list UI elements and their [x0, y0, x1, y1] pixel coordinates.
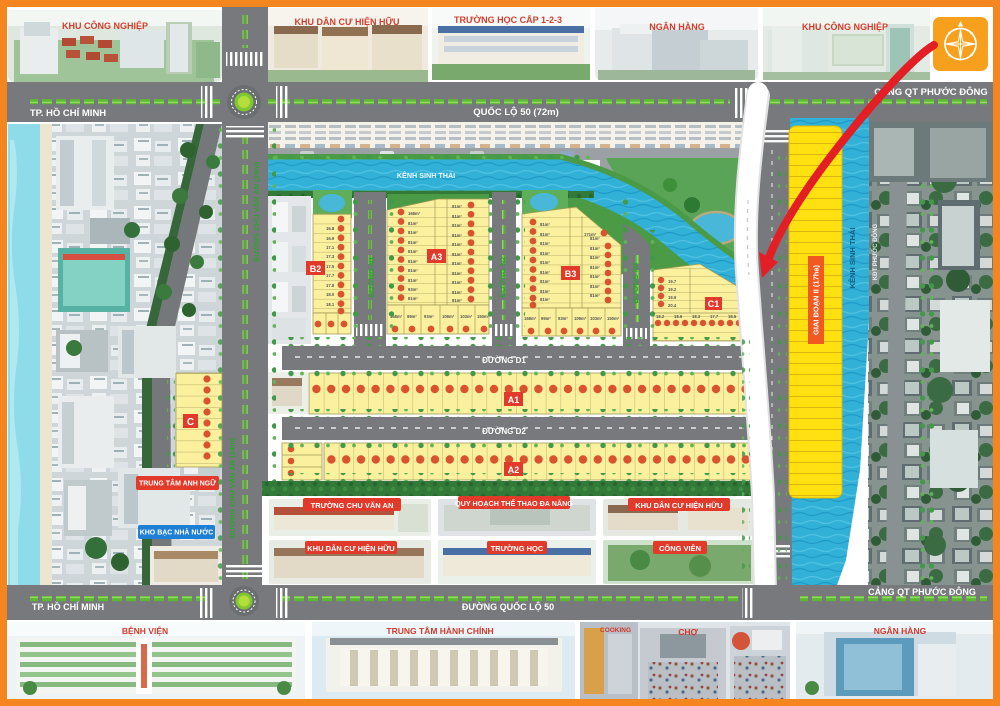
svg-text:81m²: 81m²: [408, 259, 418, 264]
svg-text:17.7: 17.7: [710, 314, 719, 319]
svg-text:81m²: 81m²: [452, 280, 462, 285]
svg-text:KHU CÔNG NGHIỆP: KHU CÔNG NGHIỆP: [62, 20, 148, 31]
svg-text:QUỐC LỘ 50 (72m): QUỐC LỘ 50 (72m): [473, 106, 559, 118]
svg-text:16.9: 16.9: [326, 236, 335, 241]
svg-text:81m²: 81m²: [452, 223, 462, 228]
svg-text:GIAI ĐOẠN II (17ha): GIAI ĐOẠN II (17ha): [812, 264, 821, 335]
svg-text:ĐƯỜNG CHU VĂN AN (24m): ĐƯỜNG CHU VĂN AN (24m): [228, 437, 237, 538]
svg-text:171m²: 171m²: [584, 232, 597, 237]
svg-text:81m²: 81m²: [408, 240, 418, 245]
svg-text:18.3: 18.3: [692, 314, 701, 319]
svg-text:81m²: 81m²: [452, 298, 462, 303]
svg-text:81m²: 81m²: [540, 222, 550, 227]
svg-text:109m²: 109m²: [574, 316, 587, 321]
svg-text:19.2: 19.2: [668, 287, 677, 292]
svg-text:KĐT PHƯỚC ĐÔNG: KĐT PHƯỚC ĐÔNG: [871, 223, 879, 280]
svg-text:81m²: 81m²: [590, 274, 600, 279]
svg-text:B3: B3: [565, 269, 577, 279]
svg-text:19.9: 19.9: [668, 295, 677, 300]
svg-text:93m²: 93m²: [558, 316, 568, 321]
svg-text:17.1: 17.1: [326, 245, 335, 250]
svg-text:20.4: 20.4: [668, 303, 677, 308]
svg-text:81m²: 81m²: [408, 296, 418, 301]
svg-text:COOKING: COOKING: [600, 627, 631, 634]
svg-text:81m²: 81m²: [408, 268, 418, 273]
svg-text:150m²: 150m²: [607, 316, 620, 321]
svg-text:81m²: 81m²: [590, 255, 600, 260]
svg-text:99m²: 99m²: [541, 316, 551, 321]
svg-text:19.7: 19.7: [668, 279, 677, 284]
svg-text:93m²: 93m²: [408, 287, 418, 292]
svg-text:ĐƯỜNG N1: ĐƯỜNG N1: [367, 257, 376, 298]
svg-text:NGÂN HÀNG: NGÂN HÀNG: [874, 625, 927, 636]
svg-text:81m²: 81m²: [452, 242, 462, 247]
svg-text:KHU DÂN CƯ HIỆN HỮU: KHU DÂN CƯ HIỆN HỮU: [635, 501, 722, 510]
svg-text:17.5: 17.5: [326, 264, 335, 269]
svg-text:81m²: 81m²: [540, 232, 550, 237]
svg-text:KHO BẠC NHÀ NƯỚC: KHO BẠC NHÀ NƯỚC: [140, 528, 214, 537]
svg-text:81m²: 81m²: [408, 249, 418, 254]
svg-text:KHU DÂN CƯ HIỆN HỮU: KHU DÂN CƯ HIỆN HỮU: [307, 544, 394, 553]
svg-text:ĐƯỜNG N3: ĐƯỜNG N3: [631, 263, 640, 304]
svg-text:81m²: 81m²: [540, 260, 550, 265]
svg-text:81m²: 81m²: [408, 221, 418, 226]
svg-text:16.8: 16.8: [326, 226, 335, 231]
svg-text:BỆNH VIỆN: BỆNH VIỆN: [122, 625, 168, 636]
svg-text:168m²: 168m²: [408, 211, 421, 216]
svg-text:TRƯỜNG HỌC CẤP 1-2-3: TRƯỜNG HỌC CẤP 1-2-3: [454, 14, 562, 25]
svg-text:B2: B2: [310, 264, 322, 274]
svg-text:ĐƯỜNG QUỐC LỘ 50: ĐƯỜNG QUỐC LỘ 50: [462, 601, 554, 612]
svg-text:81m²: 81m²: [452, 204, 462, 209]
svg-text:18.6: 18.6: [674, 314, 683, 319]
svg-text:99m²: 99m²: [407, 314, 417, 319]
svg-text:168m²: 168m²: [524, 316, 537, 321]
svg-text:81m²: 81m²: [452, 214, 462, 219]
svg-text:81m²: 81m²: [540, 297, 550, 302]
svg-text:18.1: 18.1: [326, 302, 335, 307]
svg-text:TP. HỒ CHÍ MINH: TP. HỒ CHÍ MINH: [30, 107, 106, 119]
svg-text:ĐƯỜNG D2: ĐƯỜNG D2: [482, 427, 526, 436]
svg-text:ĐƯỜNG D1: ĐƯỜNG D1: [482, 356, 526, 365]
svg-text:KÊNH SINH THÁI: KÊNH SINH THÁI: [848, 228, 857, 289]
svg-text:CẢNG QT PHƯỚC ĐÔNG: CẢNG QT PHƯỚC ĐÔNG: [868, 586, 976, 597]
svg-text:17.7: 17.7: [326, 273, 335, 278]
svg-text:KÊNH SINH THÁI: KÊNH SINH THÁI: [397, 171, 455, 180]
svg-text:81m²: 81m²: [540, 289, 550, 294]
svg-text:81m²: 81m²: [590, 293, 600, 298]
svg-text:17.3: 17.3: [326, 254, 335, 259]
svg-text:TRƯỜNG HỌC: TRƯỜNG HỌC: [491, 544, 544, 553]
svg-text:TRUNG TÂM ANH NGỮ: TRUNG TÂM ANH NGỮ: [139, 479, 216, 488]
svg-text:18.0: 18.0: [326, 292, 335, 297]
svg-text:81m²: 81m²: [452, 290, 462, 295]
svg-text:NGÂN HÀNG: NGÂN HÀNG: [649, 21, 705, 32]
svg-text:109m²: 109m²: [442, 314, 455, 319]
svg-text:CÔNG VIÊN: CÔNG VIÊN: [659, 544, 701, 553]
svg-text:81m²: 81m²: [452, 261, 462, 266]
svg-text:18.5: 18.5: [728, 314, 737, 319]
svg-text:103m²: 103m²: [460, 314, 473, 319]
svg-text:81m²: 81m²: [540, 270, 550, 275]
svg-text:81m²: 81m²: [408, 230, 418, 235]
svg-text:81m²: 81m²: [590, 246, 600, 251]
svg-text:103m²: 103m²: [590, 316, 603, 321]
svg-text:17.8: 17.8: [326, 283, 335, 288]
svg-text:A3: A3: [431, 252, 443, 262]
svg-text:TP. HỒ CHÍ MINH: TP. HỒ CHÍ MINH: [32, 601, 104, 612]
svg-text:93m²: 93m²: [424, 314, 434, 319]
svg-text:C: C: [187, 417, 194, 428]
svg-text:QUY HOẠCH THỂ THAO ĐA NĂNG: QUY HOẠCH THỂ THAO ĐA NĂNG: [455, 499, 573, 508]
svg-text:ĐƯỜNG N2: ĐƯỜNG N2: [498, 257, 507, 298]
svg-text:KHU CÔNG NGHIỆP: KHU CÔNG NGHIỆP: [802, 21, 888, 32]
svg-text:CHỢ: CHỢ: [678, 627, 698, 637]
svg-text:81m²: 81m²: [452, 233, 462, 238]
svg-text:KHU DÂN CƯ HIỆN HỮU: KHU DÂN CƯ HIỆN HỮU: [295, 16, 400, 27]
svg-text:81m²: 81m²: [540, 241, 550, 246]
svg-text:81m²: 81m²: [452, 252, 462, 257]
svg-text:81m²: 81m²: [540, 279, 550, 284]
svg-text:A1: A1: [508, 395, 520, 405]
svg-text:TRƯỜNG CHU VĂN AN: TRƯỜNG CHU VĂN AN: [311, 501, 394, 510]
svg-text:81m²: 81m²: [452, 271, 462, 276]
svg-text:81m²: 81m²: [590, 265, 600, 270]
svg-text:TRUNG TÂM HÀNH CHÍNH: TRUNG TÂM HÀNH CHÍNH: [386, 625, 493, 636]
svg-text:ĐƯỜNG CHU VĂN AN (24m): ĐƯỜNG CHU VĂN AN (24m): [252, 161, 261, 262]
svg-text:81m²: 81m²: [540, 251, 550, 256]
svg-text:81m²: 81m²: [590, 284, 600, 289]
svg-text:81m²: 81m²: [408, 278, 418, 283]
svg-text:C1: C1: [708, 299, 720, 309]
